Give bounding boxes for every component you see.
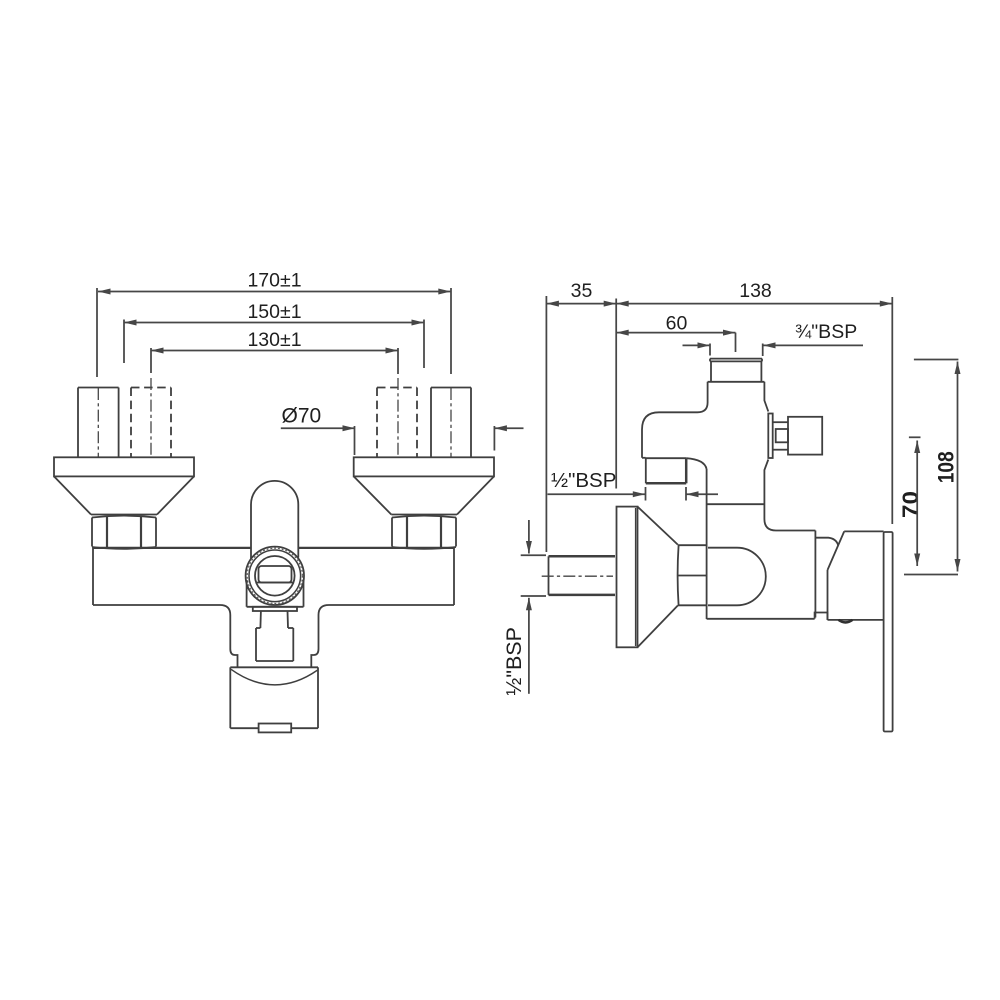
- svg-text:130±1: 130±1: [247, 329, 301, 351]
- svg-text:170±1: 170±1: [247, 270, 301, 292]
- svg-text:150±1: 150±1: [247, 301, 301, 323]
- svg-text:70: 70: [898, 491, 923, 518]
- svg-text:35: 35: [571, 280, 593, 302]
- svg-text:½"BSP: ½"BSP: [551, 469, 616, 492]
- svg-text:60: 60: [666, 313, 688, 335]
- svg-text:¾"BSP: ¾"BSP: [795, 321, 857, 343]
- svg-text:138: 138: [739, 280, 772, 302]
- svg-text:½"BSP: ½"BSP: [502, 627, 526, 696]
- svg-text:108: 108: [934, 451, 959, 483]
- svg-text:Ø70: Ø70: [282, 404, 322, 427]
